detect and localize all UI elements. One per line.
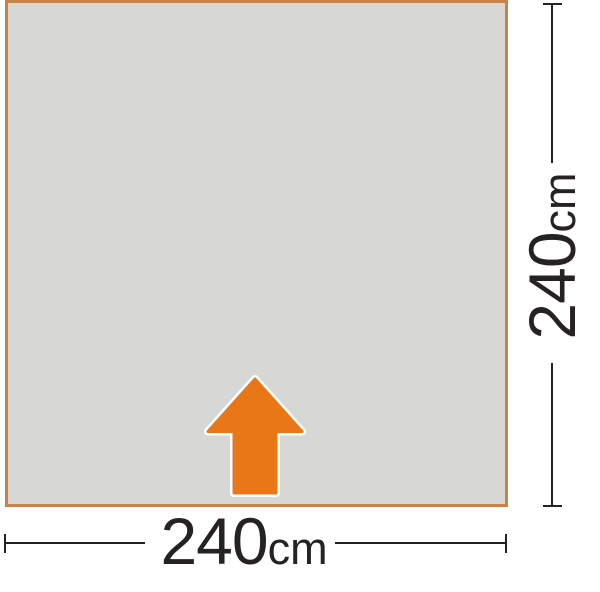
height-dimension-tick-bottom bbox=[543, 505, 562, 507]
footprint-diagram: 240cm 240cm bbox=[0, 0, 600, 592]
width-dimension-tick-right bbox=[505, 534, 507, 553]
height-dimension-line-lower bbox=[551, 363, 553, 505]
width-dimension-line-right bbox=[335, 542, 506, 544]
height-unit: cm bbox=[534, 172, 585, 232]
height-dimension-line-upper bbox=[551, 3, 553, 163]
height-value: 240 bbox=[515, 232, 589, 339]
width-value: 240 bbox=[160, 504, 267, 578]
width-unit: cm bbox=[268, 523, 328, 574]
entrance-up-arrow-icon bbox=[203, 374, 307, 498]
width-dimension-label: 240cm bbox=[158, 508, 330, 574]
width-dimension-line-left bbox=[6, 542, 145, 544]
height-dimension-label: 240cm bbox=[517, 171, 587, 341]
